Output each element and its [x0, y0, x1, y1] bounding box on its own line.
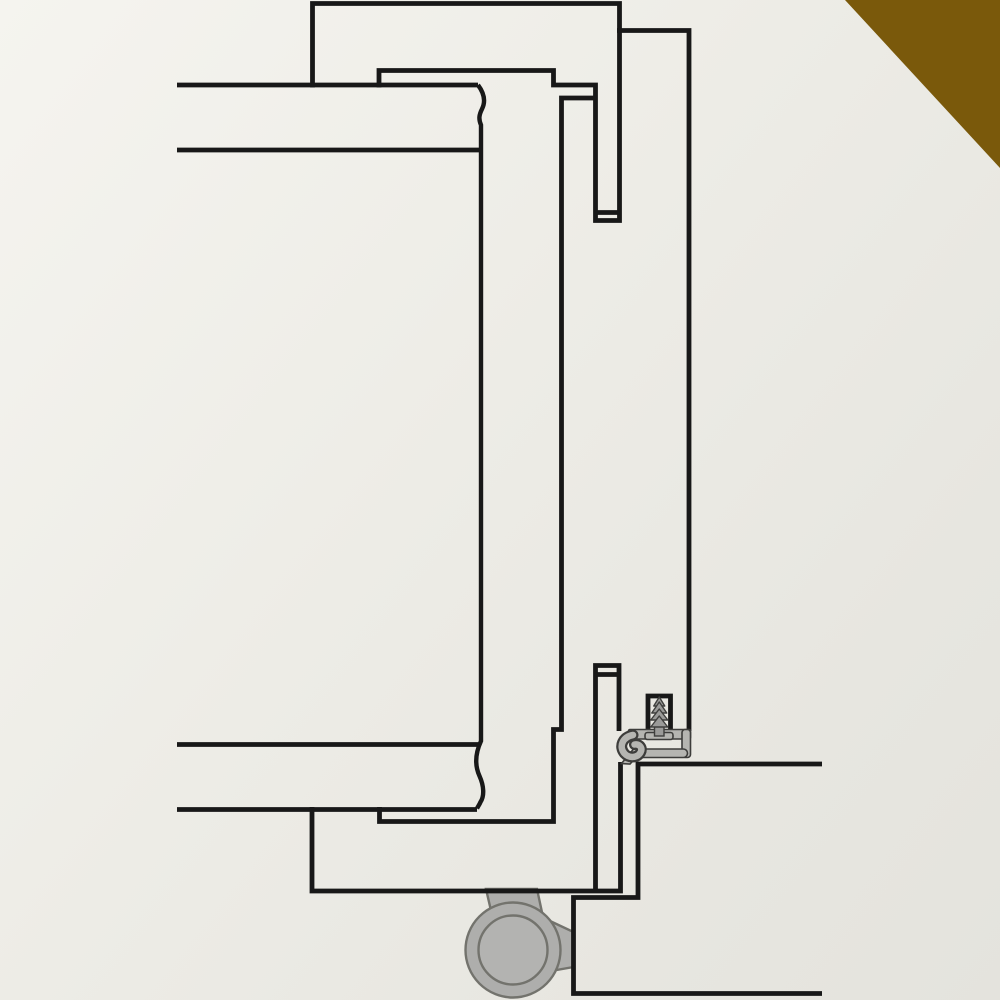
profile-line [596, 666, 620, 892]
roller-hub [479, 916, 548, 985]
profile-line [574, 764, 823, 994]
profile-line [313, 4, 620, 221]
accent-triangle [845, 0, 1000, 168]
profile-line-art [177, 4, 822, 994]
profile-line [617, 31, 689, 732]
profile-line [312, 762, 621, 891]
diagram-page [0, 0, 1000, 1000]
profile-line [380, 98, 594, 822]
cross-section-diagram [0, 0, 1000, 1000]
corner-accent-triangle [845, 0, 1000, 168]
roller-assembly [466, 889, 574, 998]
section-break-line [476, 85, 484, 809]
